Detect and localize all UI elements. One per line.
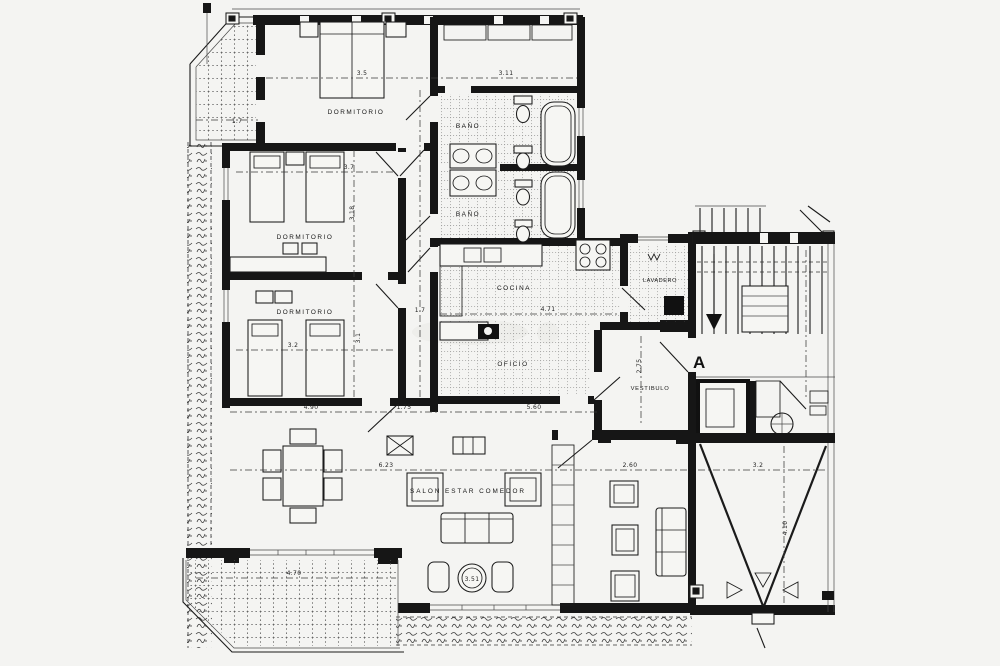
label-bano-1: BAÑO — [456, 121, 480, 130]
dim-salon-left: 4.90 — [304, 404, 319, 411]
label-cocina: COCINA — [497, 285, 531, 292]
room-bano-1: BAÑO — [440, 94, 576, 169]
dim-salon-mid: 1.75 — [397, 404, 412, 411]
dim-terrace-bottom: 4.70 — [287, 570, 302, 577]
dim-salon-circle: 3.51 — [465, 576, 480, 583]
dim-hall-width: 1.7 — [415, 307, 426, 314]
room-oficio: OFICIO — [440, 320, 590, 394]
label-dormitorio-1: DORMITORIO — [328, 109, 385, 116]
dim-dorm3-width: 3.2 — [288, 342, 299, 349]
dim-bath-width: 3.11 — [499, 70, 514, 77]
dim-dorm1-width: 3.5 — [357, 70, 368, 77]
label-dormitorio-3: DORMITORIO — [277, 309, 334, 316]
label-dormitorio-2: DORMITORIO — [277, 234, 334, 241]
garden-hedge-bottom — [396, 616, 692, 646]
stair-section-label: A — [693, 353, 705, 372]
room-bano-2: BAÑO — [440, 170, 576, 242]
label-oficio: OFICIO — [497, 361, 528, 368]
dim-cocina-width: 4.71 — [541, 306, 556, 313]
dim-vterrace-width: 3.2 — [753, 462, 764, 469]
dim-vestibulo-depth: 2.75 — [636, 359, 643, 374]
dim-vterrace-depth: 4.10 — [782, 521, 789, 536]
label-salon: SALON ESTAR COMEDOR — [410, 488, 526, 495]
label-bano-2: BAÑO — [456, 209, 480, 218]
room-lavadero: LAVADERO — [628, 244, 688, 322]
dim-salon-width: 6.23 — [379, 462, 394, 469]
floor-plan-canvas: 1.7 — [0, 0, 1000, 666]
label-lavadero: LAVADERO — [643, 278, 677, 284]
room-cocina: COCINA 4.71 — [440, 240, 620, 316]
dim-sitting-width: 2.60 — [623, 462, 638, 469]
dim-salon-right: 5.60 — [527, 404, 542, 411]
label-vestibulo: VESTIBULO — [631, 386, 670, 392]
dim-terrace-top: 1.7 — [232, 118, 243, 125]
dim-dorm2-depth: 3.18 — [349, 206, 356, 221]
scanned-floor-plan: 1.7 — [0, 0, 1000, 666]
dim-dorm2-width: 3.7 — [344, 164, 355, 171]
dim-dorm3-depth: 3.1 — [355, 333, 362, 344]
